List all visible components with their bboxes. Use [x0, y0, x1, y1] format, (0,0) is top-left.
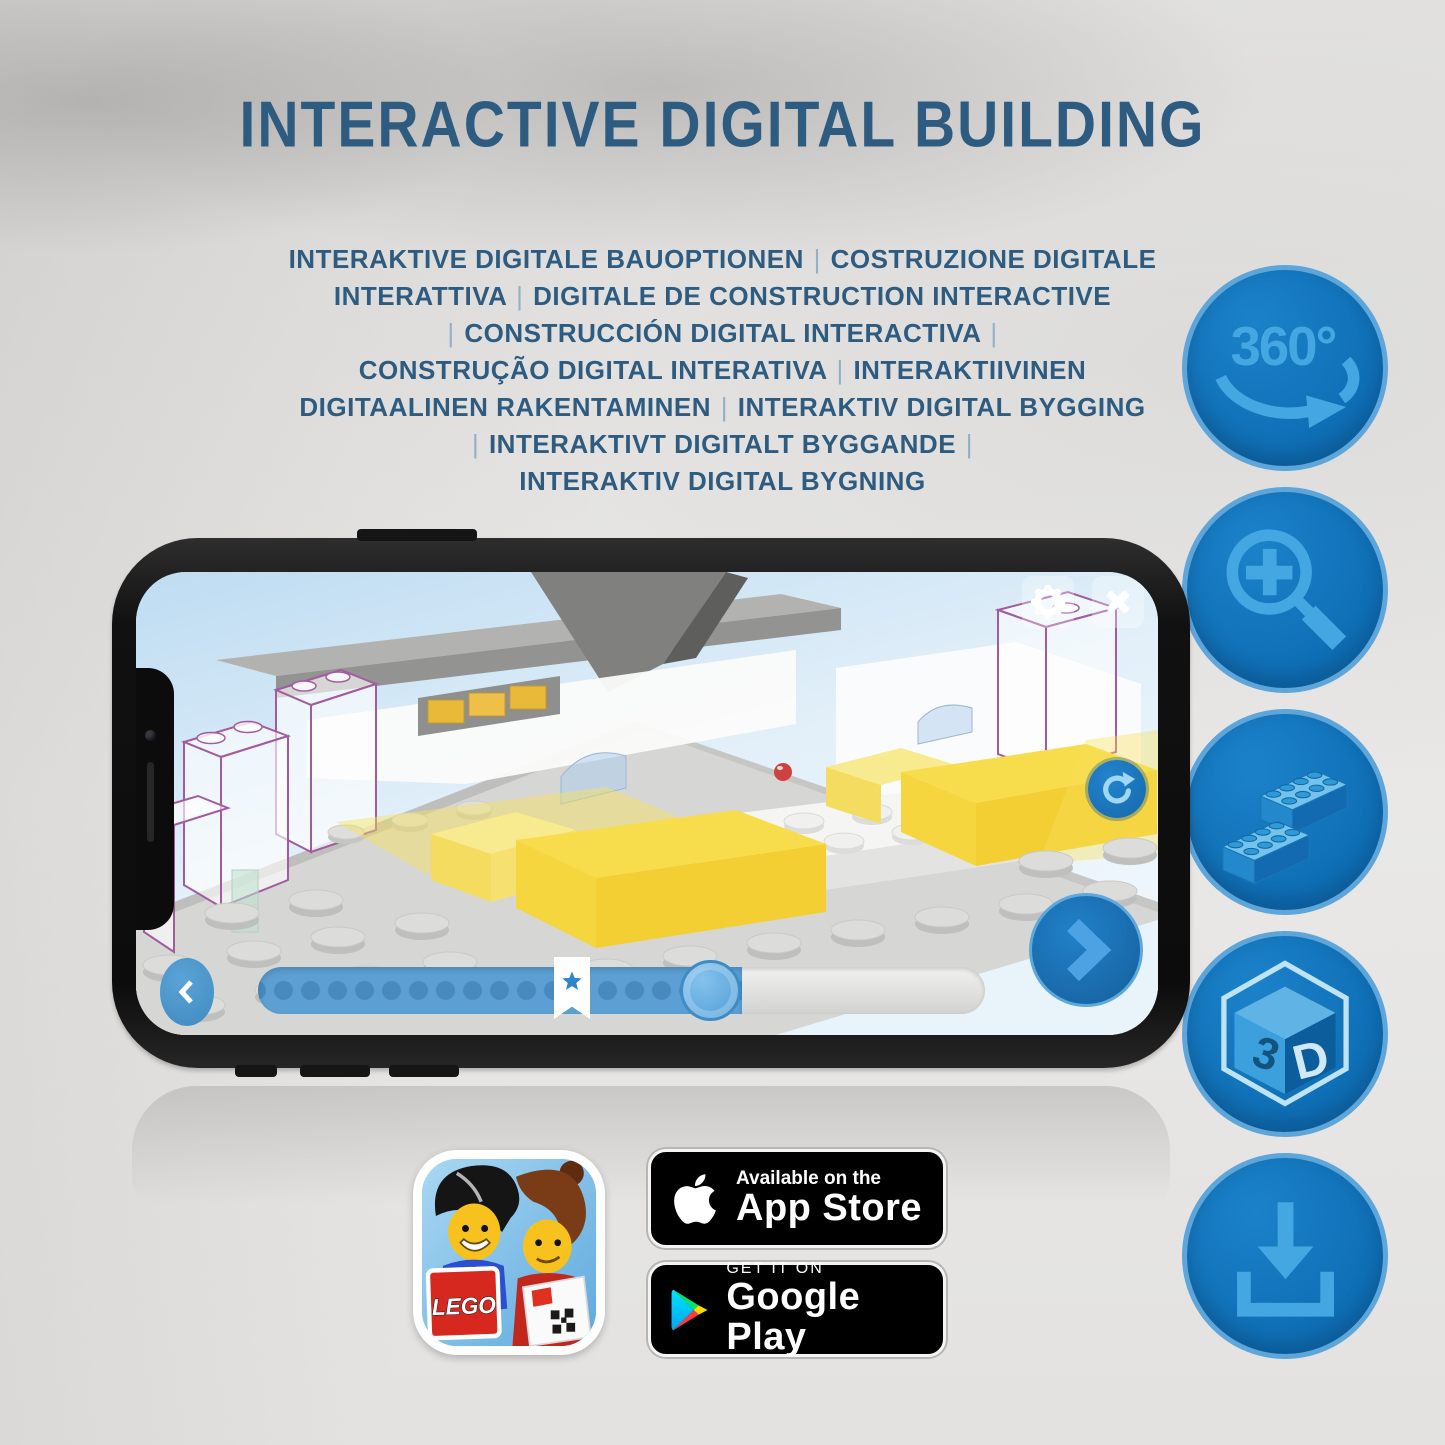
- gear-icon: [1029, 583, 1067, 621]
- earpiece-speaker: [147, 762, 154, 842]
- subtitle-block: INTERAKTIVE DIGITALE BAUOPTIONEN | COSTR…: [193, 241, 1253, 500]
- phone-volume-down-button: [389, 1065, 459, 1077]
- subtitle-line: INTERAKTIVE DIGITALE BAUOPTIONEN | COSTR…: [193, 241, 1253, 278]
- subtitle-line: CONSTRUÇÃO DIGITAL INTERATIVA | INTERAKT…: [193, 352, 1253, 389]
- slider-thumb[interactable]: [680, 960, 741, 1021]
- chevron-right-icon: [1057, 917, 1115, 983]
- rotate-model-button[interactable]: [1088, 760, 1146, 818]
- lego-3d-build-scene[interactable]: [136, 572, 1158, 1035]
- phone-screen: [136, 572, 1158, 1035]
- app-store-name: App Store: [736, 1189, 922, 1229]
- 360-rotation-icon: 360°: [1182, 265, 1388, 471]
- 360-label: 360°: [1230, 315, 1335, 377]
- google-play-badge[interactable]: GET IT ON Google Play: [648, 1262, 946, 1357]
- chevron-left-icon: [176, 977, 198, 1007]
- subtitle-line: | CONSTRUCCIÓN DIGITAL INTERACTIVA |: [193, 315, 1253, 352]
- zoom-in-icon: [1182, 487, 1388, 693]
- phone-notch: [136, 668, 174, 930]
- star-icon: [561, 970, 583, 992]
- brick-building-icon: [1182, 709, 1388, 915]
- apple-icon: [669, 1168, 721, 1230]
- build-progress-slider[interactable]: [258, 967, 985, 1014]
- rotate-icon: [1098, 770, 1136, 808]
- lego-logo-text: LEGO: [431, 1292, 496, 1321]
- phone-mockup: [112, 538, 1190, 1068]
- play-triangle-icon: [669, 1283, 711, 1337]
- lego-app-icon[interactable]: LEGO: [413, 1150, 605, 1355]
- subtitle-line: INTERATTIVA | DIGITALE DE CONSTRUCTION I…: [193, 278, 1253, 315]
- app-store-tagline: Available on the: [736, 1169, 922, 1189]
- download-icon: [1182, 1153, 1388, 1359]
- front-camera: [145, 730, 156, 741]
- phone-power-button: [357, 529, 477, 541]
- slider-progress-fill: [258, 967, 742, 1014]
- subtitle-line: DIGITAALINEN RAKENTAMINEN | INTERAKTIV D…: [193, 389, 1253, 426]
- next-step-button[interactable]: [1029, 893, 1143, 1007]
- phone-mute-switch: [235, 1065, 277, 1077]
- app-store-badge[interactable]: Available on the App Store: [648, 1149, 946, 1248]
- google-play-name: Google Play: [726, 1278, 925, 1358]
- page-title: INTERACTIVE DIGITAL BUILDING: [0, 87, 1445, 162]
- close-icon: [1100, 584, 1136, 620]
- page: INTERACTIVE DIGITAL BUILDING INTERAKTIVE…: [0, 0, 1445, 1445]
- subtitle-line: INTERAKTIV DIGITAL BYGNING: [193, 463, 1253, 500]
- 3d-view-icon: 3 D: [1182, 931, 1388, 1137]
- settings-button[interactable]: [1022, 576, 1074, 628]
- subtitle-line: | INTERAKTIVT DIGITALT BYGGANDE |: [193, 426, 1253, 463]
- previous-step-button[interactable]: [160, 958, 214, 1026]
- close-button[interactable]: [1092, 576, 1144, 628]
- phone-volume-up-button: [300, 1065, 370, 1077]
